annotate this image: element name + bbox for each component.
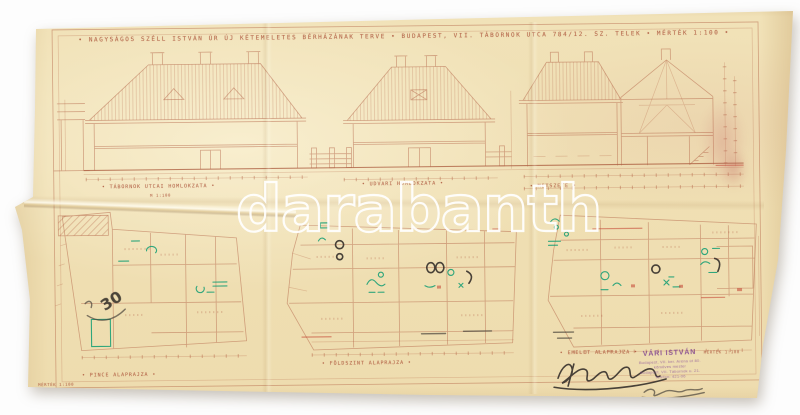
caption-left-elevation: • TÁBORNOK UTCAI HOMLOKZATA • xyxy=(102,183,215,190)
caption-ground-plan: • FÖLDSZINT ALAPRAJZA • xyxy=(322,360,412,367)
watermark-darabanth: darabanth xyxy=(236,178,601,242)
architect-stamp: VÁRI ISTVÁN Budapest, VII. ker. Aréna út… xyxy=(617,348,722,381)
pink-stain xyxy=(720,148,748,190)
caption-basement-plan: • PINCE ALAPRAJZA • xyxy=(82,372,156,379)
middle-elevation-drawing xyxy=(308,55,511,168)
corner-scale-note: MÉRTÉK 1:100 xyxy=(38,382,74,387)
basement-plan-drawing xyxy=(54,211,247,358)
ground-line xyxy=(84,163,744,170)
pencil-signature xyxy=(642,389,704,399)
auction-photo: • NAGYSÁGOS SZÉLL ISTVÁN ÚR ÚJ KÉTEMELET… xyxy=(0,0,800,415)
